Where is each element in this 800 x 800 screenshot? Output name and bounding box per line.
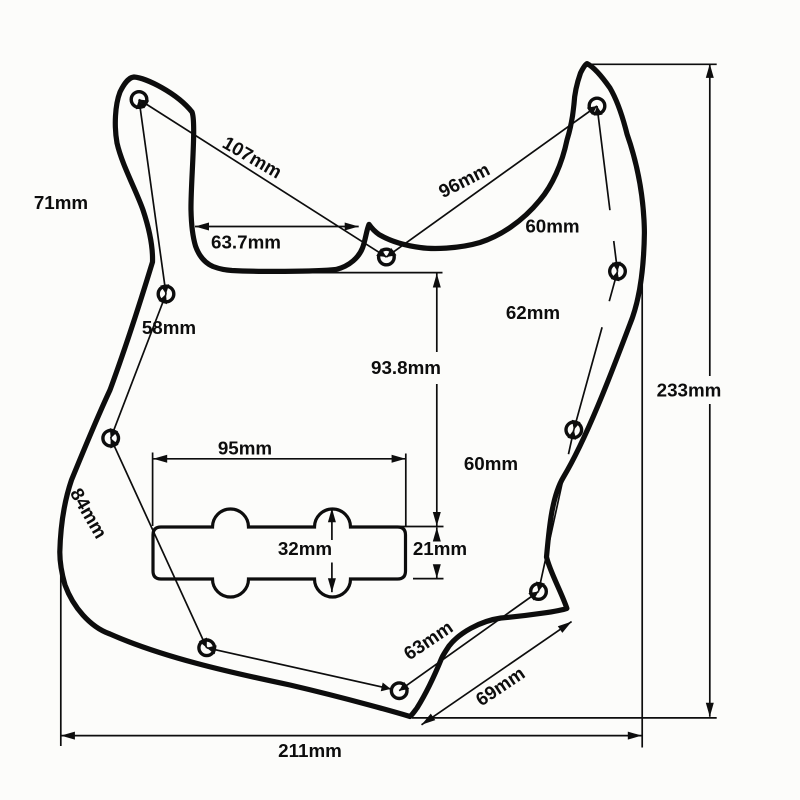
svg-text:84mm: 84mm — [66, 484, 111, 542]
svg-text:211mm: 211mm — [278, 740, 342, 761]
svg-text:60mm: 60mm — [525, 215, 579, 236]
svg-text:69mm: 69mm — [472, 662, 529, 710]
svg-text:71mm: 71mm — [34, 192, 88, 213]
svg-text:95mm: 95mm — [218, 437, 272, 458]
svg-text:62mm: 62mm — [506, 302, 560, 323]
svg-text:21mm: 21mm — [413, 538, 467, 559]
svg-text:96mm: 96mm — [435, 159, 493, 202]
svg-text:60mm: 60mm — [464, 453, 518, 474]
svg-text:32mm: 32mm — [278, 538, 332, 559]
svg-text:93.8mm: 93.8mm — [371, 357, 441, 378]
svg-text:58mm: 58mm — [142, 317, 196, 338]
svg-text:63.7mm: 63.7mm — [211, 231, 281, 252]
svg-text:233mm: 233mm — [657, 379, 722, 400]
